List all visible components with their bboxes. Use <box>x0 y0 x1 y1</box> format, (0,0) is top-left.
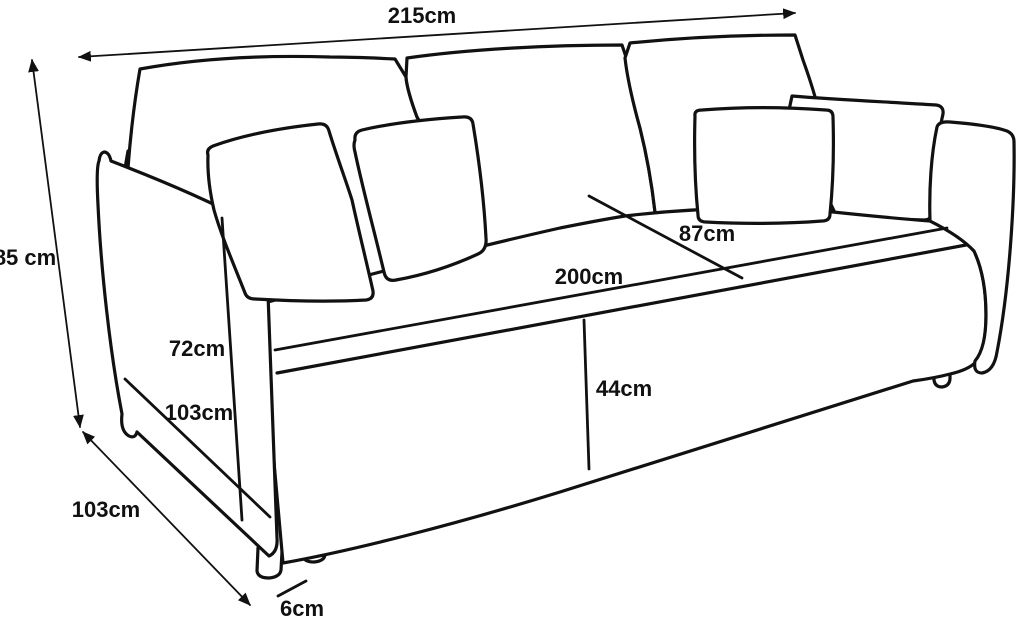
label-seat-height: 44cm <box>596 376 652 401</box>
label-armrest-diagonal: 103cm <box>165 400 234 425</box>
sofa-dimension-diagram: 215cm 85 cm 87cm 200cm 72cm 103cm 103cm … <box>0 0 1020 625</box>
label-seat-depth: 87cm <box>679 221 735 246</box>
label-overall-depth: 103cm <box>72 497 141 522</box>
label-seat-width: 200cm <box>555 264 624 289</box>
label-overall-height: 85 cm <box>0 245 56 270</box>
label-armrest-height: 72cm <box>169 336 225 361</box>
label-overall-width: 215cm <box>388 3 457 28</box>
overall-height-arrow <box>32 60 80 427</box>
sofa-drawing <box>97 35 1014 578</box>
label-leg-height: 6cm <box>280 596 324 621</box>
leg-height-tick <box>278 581 306 596</box>
pillow-seat-right <box>695 108 834 224</box>
diagram-canvas: 215cm 85 cm 87cm 200cm 72cm 103cm 103cm … <box>0 0 1020 625</box>
